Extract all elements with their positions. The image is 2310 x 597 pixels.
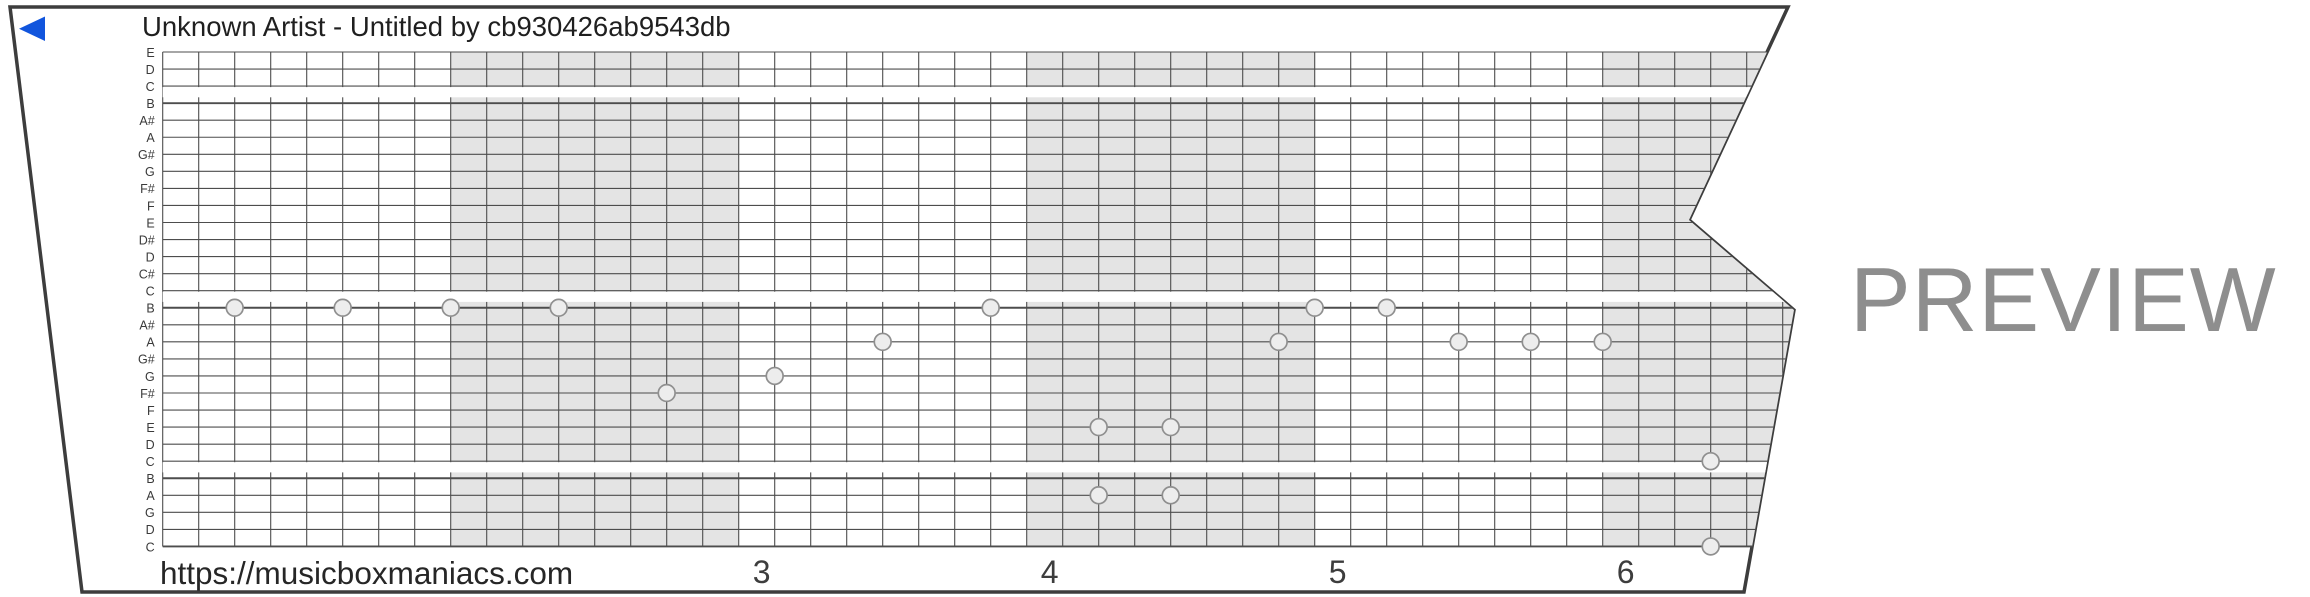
pitch-label: A xyxy=(146,336,155,350)
preview-watermark: PREVIEW xyxy=(1850,250,2277,351)
pitch-label: D# xyxy=(139,233,155,247)
note-dot xyxy=(550,299,567,316)
pitch-label: F xyxy=(147,199,155,213)
pitch-label: C xyxy=(146,540,155,554)
pitch-label: D xyxy=(146,63,155,77)
site-url-watermark: https://musicboxmaniacs.com xyxy=(160,555,573,591)
measure-number: 5 xyxy=(1329,554,1347,590)
note-dot xyxy=(1306,299,1323,316)
pitch-label: C xyxy=(146,285,155,299)
note-dot xyxy=(1702,538,1719,555)
pitch-label: G xyxy=(145,165,155,179)
note-dot xyxy=(1594,333,1611,350)
note-dot xyxy=(658,385,675,402)
pitch-label: E xyxy=(146,216,154,230)
note-dot xyxy=(1702,453,1719,470)
measure-number: 4 xyxy=(1041,554,1059,590)
note-dot xyxy=(1162,487,1179,504)
pitch-label: D xyxy=(146,523,155,537)
measure-number: 6 xyxy=(1617,554,1635,590)
note-dot xyxy=(1270,333,1287,350)
pitch-label: D xyxy=(146,438,155,452)
pitch-label: C xyxy=(146,80,155,94)
measure-number: 3 xyxy=(753,554,771,590)
note-dot xyxy=(1378,299,1395,316)
pitch-label: A# xyxy=(139,319,154,333)
pitch-label: G xyxy=(145,506,155,520)
note-dot xyxy=(874,333,891,350)
note-dot xyxy=(982,299,999,316)
note-dot xyxy=(1450,333,1467,350)
note-dot xyxy=(1090,487,1107,504)
pitch-label: E xyxy=(146,421,154,435)
music-box-strip-preview: EDCBA#AG#GF#FED#DC#CBA#AG#GF#FEDCBAGDC 3… xyxy=(0,0,2310,597)
pitch-label: C xyxy=(146,455,155,469)
pitch-label: A xyxy=(146,131,155,145)
pitch-label: F# xyxy=(140,387,155,401)
note-dot xyxy=(442,299,459,316)
pitch-label: B xyxy=(146,302,154,316)
note-dot xyxy=(1090,419,1107,436)
note-dot xyxy=(766,368,783,385)
pitch-label: F xyxy=(147,404,155,418)
pitch-label: E xyxy=(146,46,154,60)
pitch-label: A# xyxy=(139,114,154,128)
note-dot xyxy=(1162,419,1179,436)
pitch-label: C# xyxy=(139,267,155,281)
note-dot xyxy=(334,299,351,316)
note-dot xyxy=(226,299,243,316)
pitch-label: B xyxy=(146,472,154,486)
pitch-label: A xyxy=(146,489,155,503)
song-title: Unknown Artist - Untitled by cb930426ab9… xyxy=(142,11,731,42)
pitch-label: G# xyxy=(138,353,155,367)
pitch-label: G xyxy=(145,370,155,384)
pitch-label: F# xyxy=(140,182,155,196)
pitch-label: G# xyxy=(138,148,155,162)
note-dot xyxy=(1522,333,1539,350)
pitch-label: B xyxy=(146,97,154,111)
pitch-label: D xyxy=(146,250,155,264)
